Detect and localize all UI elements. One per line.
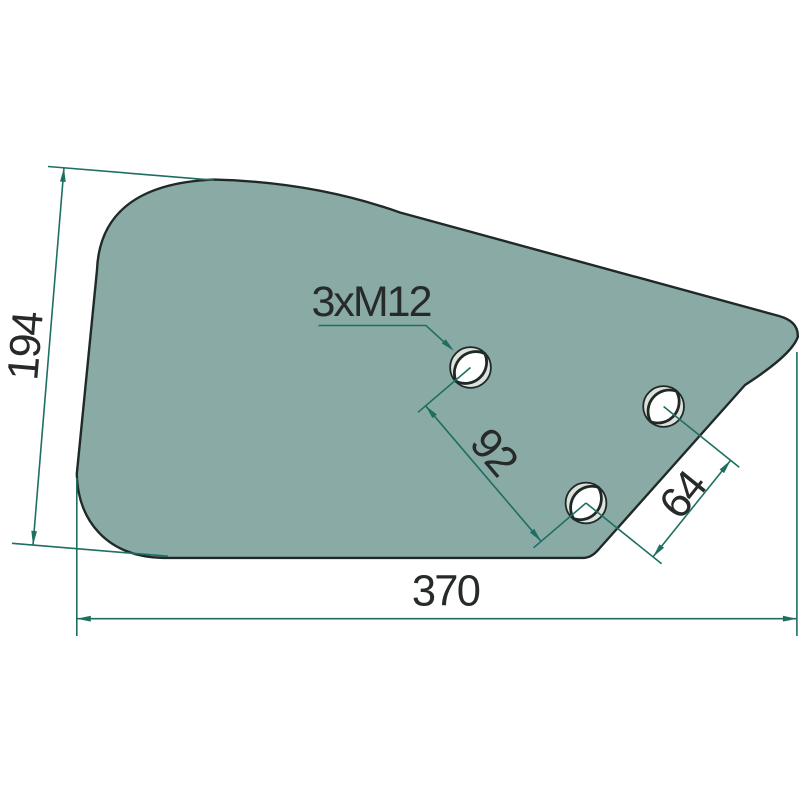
svg-text:194: 194 <box>0 310 53 382</box>
svg-text:370: 370 <box>412 568 480 616</box>
svg-text:3xM12: 3xM12 <box>311 278 430 326</box>
